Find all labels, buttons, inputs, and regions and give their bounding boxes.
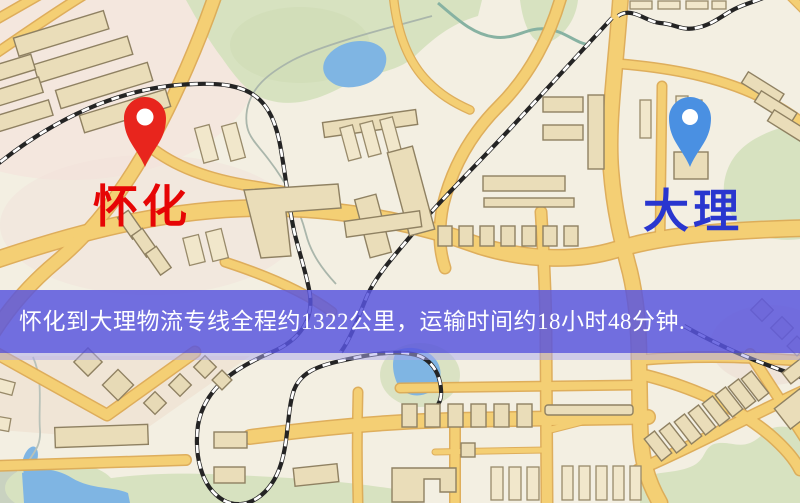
- map-screenshot: 怀化 大理 怀化到大理物流专线全程约1322公里，运输时间约18小时48分钟.: [0, 0, 800, 503]
- destination-city-label: 大理: [643, 175, 743, 241]
- route-info-banner: 怀化到大理物流专线全程约1322公里，运输时间约18小时48分钟.: [0, 290, 800, 353]
- origin-city-label: 怀化: [93, 170, 191, 235]
- route-info-banner-fade: [0, 353, 800, 360]
- destination-pin-icon: [660, 91, 720, 169]
- origin-pin-icon: [115, 91, 175, 169]
- map-canvas: [0, 0, 800, 503]
- route-info-text: 怀化到大理物流专线全程约1322公里，运输时间约18小时48分钟.: [19, 290, 685, 353]
